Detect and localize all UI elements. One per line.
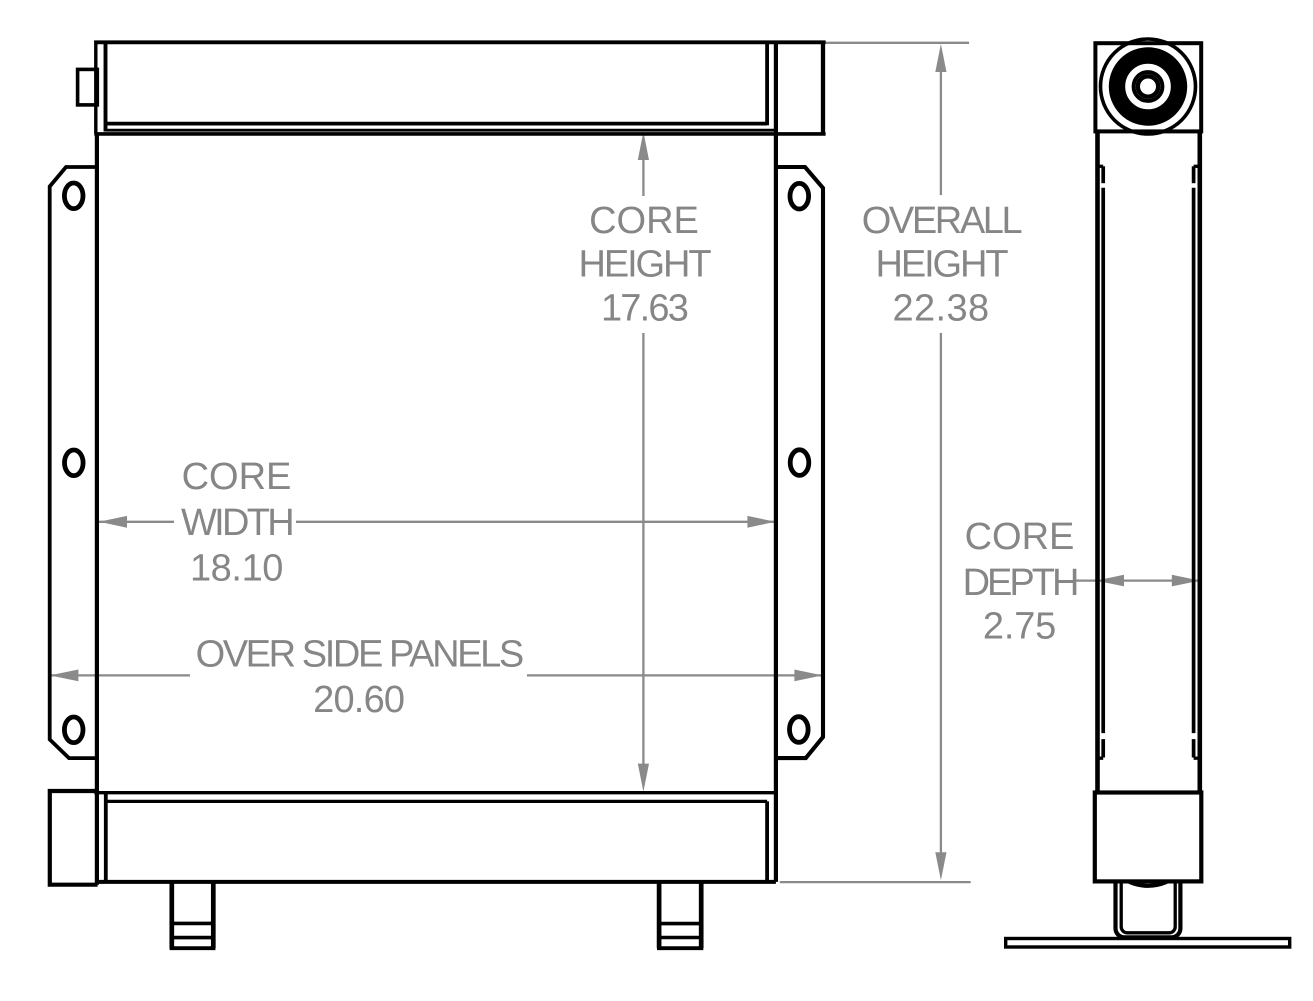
svg-text:CORE: CORE [965,516,1075,558]
svg-text:OVERALL: OVERALL [862,200,1022,242]
svg-text:OVER SIDE PANELS: OVER SIDE PANELS [196,633,523,675]
svg-text:HEIGHT: HEIGHT [579,244,712,286]
svg-text:22.38: 22.38 [892,288,989,330]
svg-text:WIDTH: WIDTH [181,502,292,544]
svg-text:2.75: 2.75 [983,606,1056,648]
svg-text:17.63: 17.63 [601,288,688,330]
svg-text:CORE: CORE [589,200,699,242]
svg-text:HEIGHT: HEIGHT [876,244,1009,286]
svg-text:20.60: 20.60 [313,679,404,721]
svg-text:DEPTH: DEPTH [963,562,1077,604]
svg-text:CORE: CORE [182,456,292,498]
svg-text:18.10: 18.10 [190,548,283,590]
